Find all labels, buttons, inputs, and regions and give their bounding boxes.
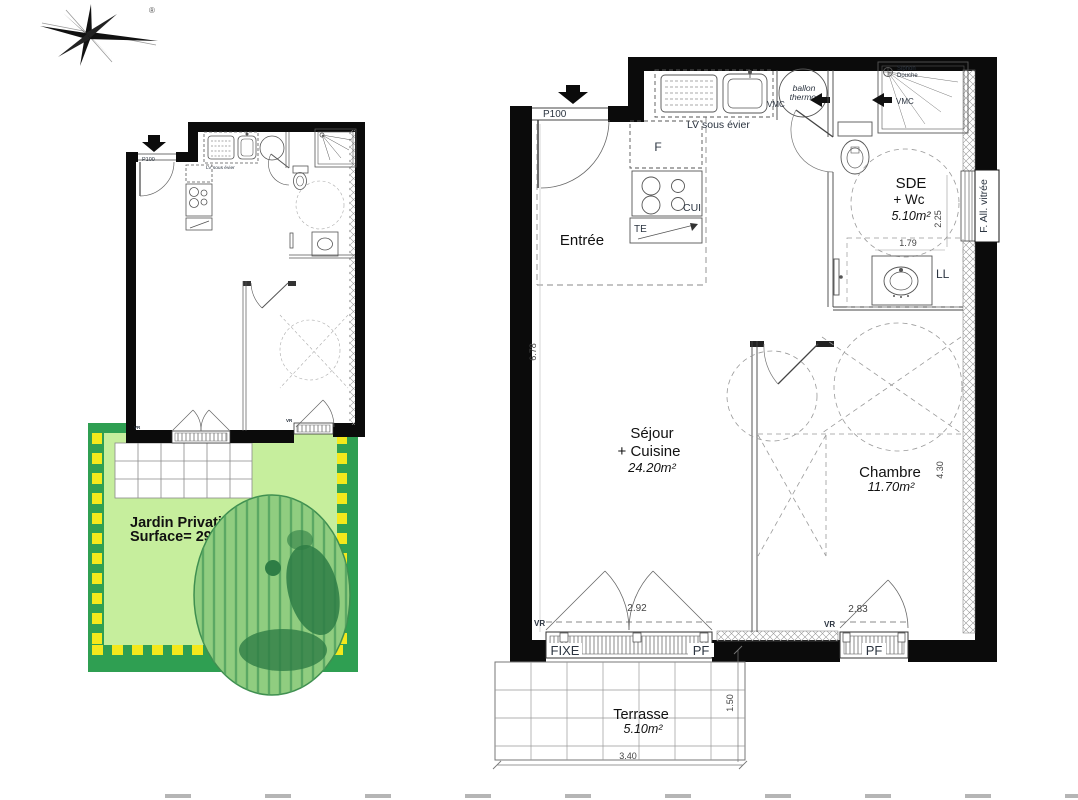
- entrance-arrow-icon: [558, 85, 588, 104]
- main-plan: F. All. vitrée P100 Entrée LV sous évier: [493, 57, 999, 769]
- room-area-sde: 5.10m²: [892, 209, 932, 223]
- mini-sink-label: LV sous évier: [206, 165, 235, 171]
- mini-door-label: P100: [142, 157, 155, 163]
- room-label-sde-wc: + Wc: [893, 192, 924, 207]
- mini-plan: P100 LV sous évier: [126, 122, 365, 443]
- room-area-sejour: 24.20m²: [627, 460, 676, 475]
- garden-tree: [194, 495, 350, 695]
- garden: Jardin Privatif Surface= 29.40m²: [88, 423, 358, 695]
- window-pf-right-label: PF: [866, 643, 883, 658]
- vmc-left-label: VMC: [767, 100, 785, 109]
- dim-sejour-window: 2.92: [627, 603, 647, 614]
- room-label-sde: SDE: [896, 175, 927, 192]
- toilet: [838, 122, 872, 174]
- floor-plan-sheet: ® Jardin Privatif Surface= 29.40m²: [0, 0, 1078, 800]
- window-fixe-label: FIXE: [551, 643, 580, 658]
- exterior-walls: [510, 57, 997, 662]
- electrical-panel: TE: [630, 218, 702, 243]
- compass-rose: ®: [40, 4, 158, 66]
- dim-sde-width: 1.79: [899, 238, 917, 248]
- dim-terrasse-width: 3.40: [619, 751, 637, 761]
- bedroom-partition: [750, 341, 834, 632]
- registered-mark: ®: [149, 6, 155, 15]
- bedroom-dashes: [727, 323, 962, 556]
- floorplan-svg: ® Jardin Privatif Surface= 29.40m²: [0, 0, 1078, 800]
- room-label-sejour-cuisine: + Cuisine: [618, 443, 681, 460]
- kitchen-label: CUI: [683, 202, 701, 214]
- dim-sde-height: 2.25: [933, 210, 943, 228]
- glazed-sill-label: F. All. vitrée: [978, 179, 990, 233]
- garden-paving: [115, 443, 252, 498]
- room-label-terrasse: Terrasse: [613, 707, 669, 723]
- entry-door-label: P100: [543, 109, 567, 120]
- room-label-entree: Entrée: [560, 232, 604, 249]
- kitchen-sink: [655, 70, 773, 117]
- vr-left-label: VR: [534, 619, 545, 628]
- mini-vr-right: VR: [286, 418, 293, 423]
- dim-entry-wall: 6.78: [528, 343, 538, 361]
- vr-right-label: VR: [824, 620, 835, 629]
- siphon-label-2: Douche: [897, 73, 918, 79]
- dim-terrasse-depth: 1.50: [725, 694, 735, 712]
- terrace: Terrasse 5.10m² 3.40 1.50: [493, 646, 747, 769]
- vmc-right-label: VMC: [896, 97, 914, 106]
- washer-label: LL: [936, 267, 950, 281]
- dim-chambre-height: 4.30: [935, 461, 945, 479]
- sde-window: F. All. vitrée: [961, 170, 999, 242]
- zone-dashes: [537, 117, 706, 285]
- window-pf-left-label: PF: [693, 643, 710, 658]
- siphon-label-1: Siphon: [897, 66, 916, 72]
- sejour-window: VR FIXE PF 2.92: [534, 571, 714, 658]
- fridge-label: F: [654, 140, 661, 154]
- dim-chambre-window: 2.83: [848, 604, 868, 615]
- room-area-terrasse: 5.10m²: [624, 722, 664, 736]
- insulation-hatch: [717, 70, 975, 641]
- vmc-right-arrow-icon: [872, 93, 892, 107]
- mini-insulation: [349, 130, 355, 425]
- room-area-chambre: 11.70m²: [868, 479, 915, 494]
- electrical-label: TE: [634, 224, 647, 235]
- mini-vr-left: VR: [134, 425, 141, 430]
- entry-door: P100: [532, 108, 609, 188]
- room-label-sejour: Séjour: [630, 425, 673, 442]
